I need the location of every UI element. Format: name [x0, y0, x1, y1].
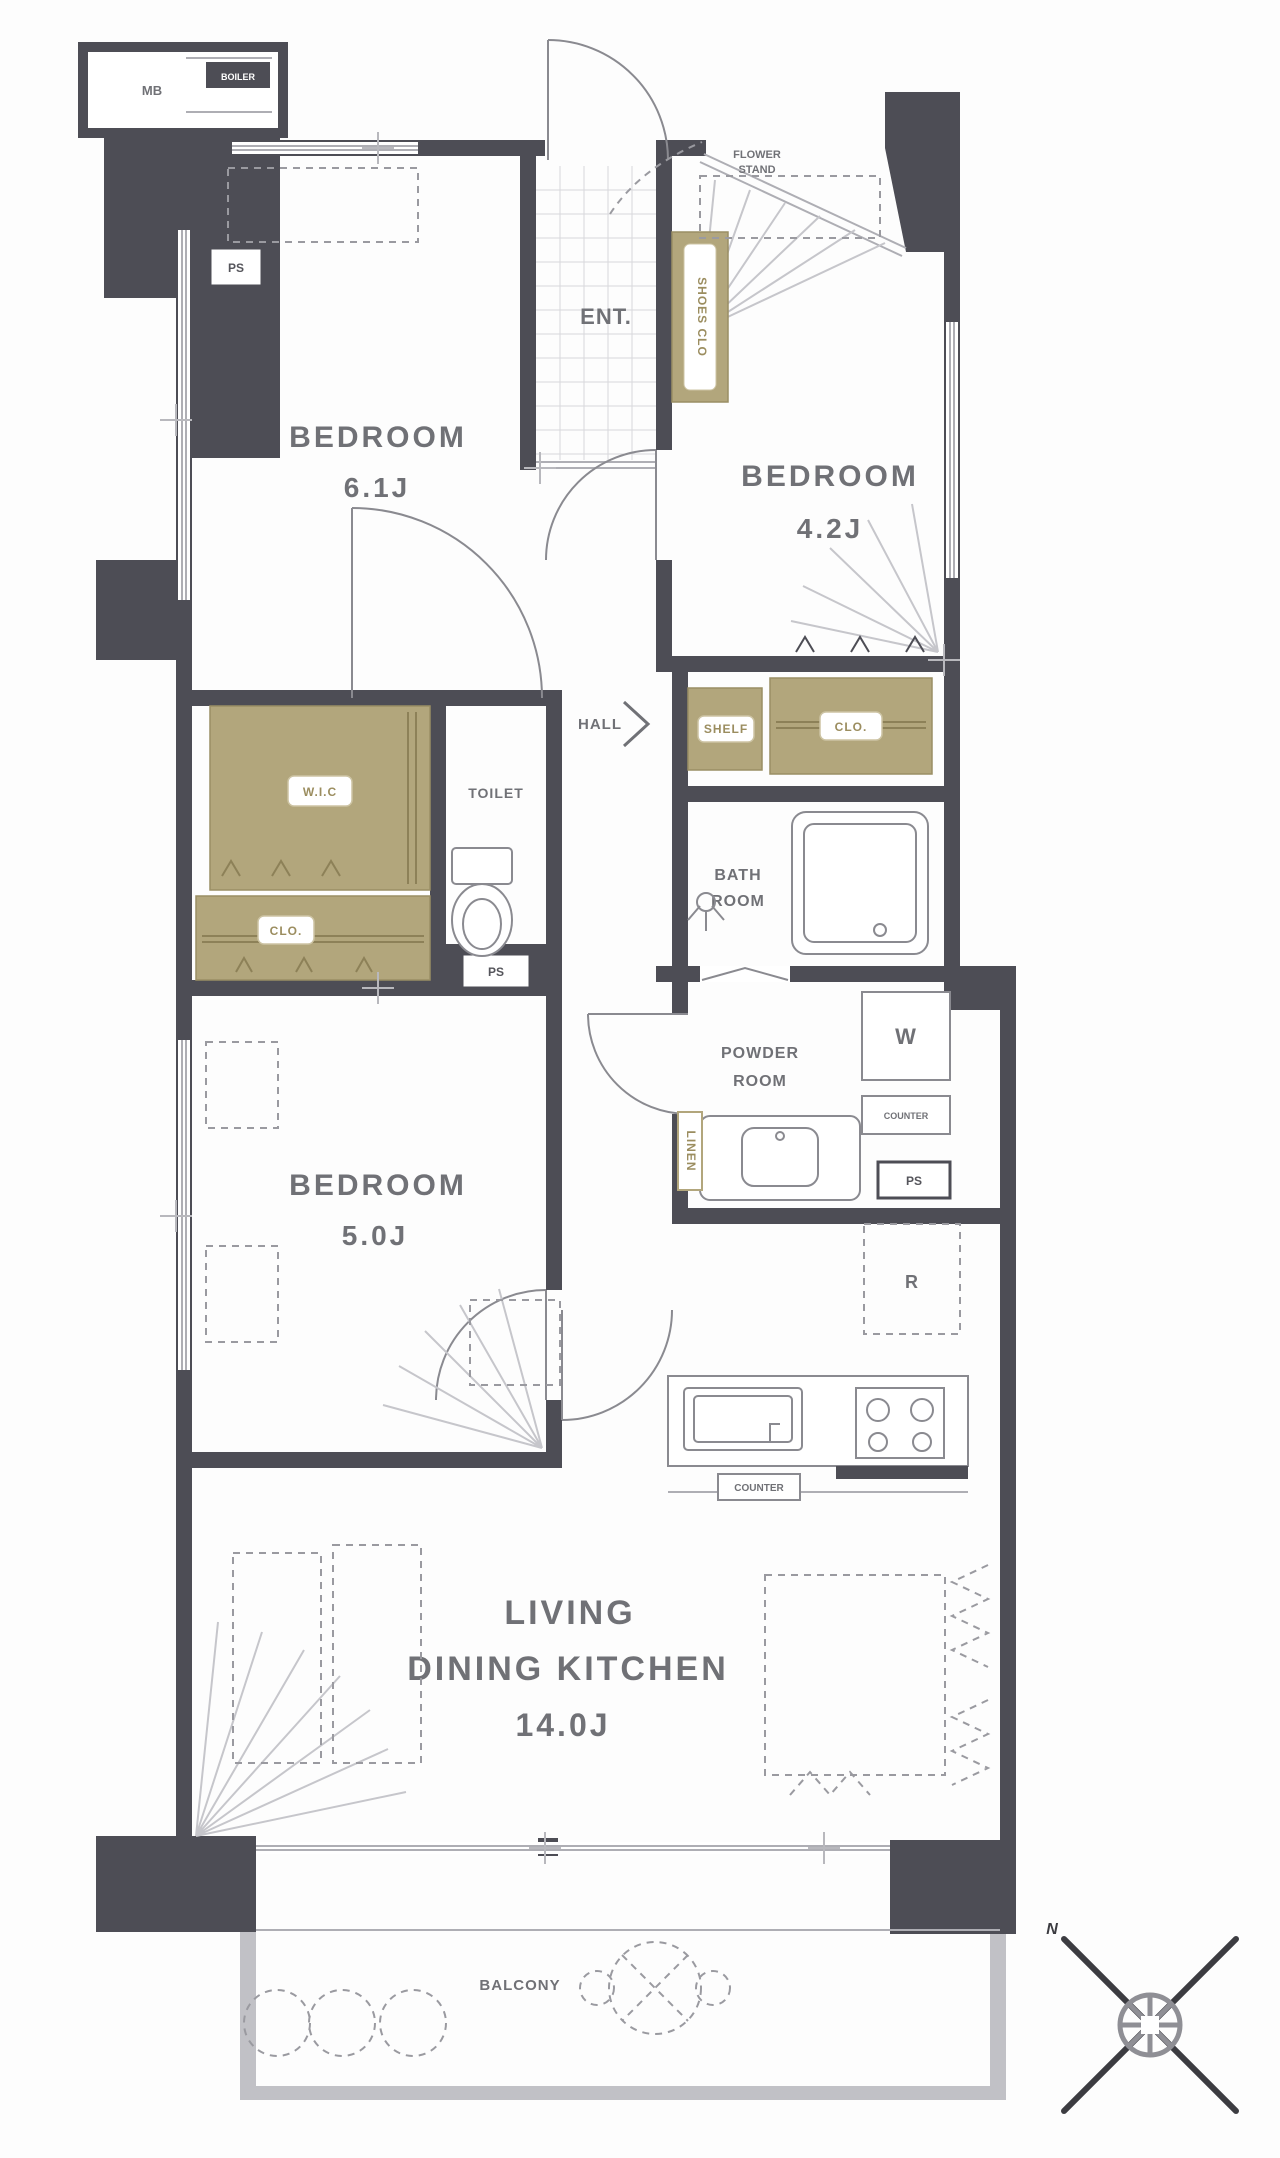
ldk-line2: DINING KITCHEN: [407, 1650, 729, 1688]
balcony: [240, 1930, 1006, 2100]
hall-shelf: SHELF: [688, 688, 762, 770]
shoes-closet-label: SHOES CLO: [695, 277, 709, 357]
bathroom-label-1: BATH: [714, 867, 761, 884]
ps2-label: PS: [488, 965, 504, 979]
toilet-label: TOILET: [468, 785, 524, 801]
powder-room-door: [588, 1014, 688, 1114]
bath-folding-door: [700, 966, 790, 982]
flower-stand-label-1: FLOWER: [733, 149, 781, 161]
refrigerator-space: R: [864, 1224, 960, 1334]
ldk-line1: LIVING: [504, 1594, 635, 1632]
room-bedroom2: BEDROOM 4.2J: [700, 176, 919, 544]
closet-under-wic: CLO.: [196, 896, 430, 980]
bedroom3-door: [436, 1290, 546, 1400]
shelf-label: SHELF: [704, 722, 748, 736]
bedroom3-name: BEDROOM: [289, 1169, 467, 1202]
toilet-fixture: [452, 848, 512, 956]
floor-plan-page: FLOWER STAND SHOES CLO W.I.C CLO. SHELF …: [0, 0, 1280, 2158]
shoes-closet: SHOES CLO: [672, 232, 728, 402]
vanity-sink: LINEN: [678, 1112, 860, 1200]
ldk-door: [562, 1310, 672, 1420]
kitchen-counter-label: COUNTER: [734, 1483, 784, 1494]
wic-label: W.I.C: [303, 785, 337, 799]
meter-box-label: MB: [142, 83, 162, 98]
bedroom1-door: [352, 508, 542, 698]
kitchen-counter: COUNTER: [668, 1376, 968, 1500]
ldk-size: 14.0J: [515, 1707, 610, 1743]
north-label: N: [1046, 1921, 1058, 1938]
bedroom1-left-window: [178, 230, 190, 600]
ps1-label: PS: [228, 261, 244, 275]
bedroom1-size: 6.1J: [344, 472, 411, 503]
ldk-balcony-window: [256, 1842, 890, 1854]
closet2-label: CLO.: [270, 924, 303, 938]
bedroom2-size: 4.2J: [797, 513, 864, 544]
entrance-door: [548, 40, 668, 160]
entrance-label: ENT.: [580, 304, 632, 329]
hall-step-arrow-icon: [624, 702, 648, 746]
balcony-label: BALCONY: [479, 1977, 560, 1994]
planter-icon: [309, 1990, 375, 2056]
powder-label-1: POWDER: [721, 1045, 799, 1062]
ps3-label: PS: [906, 1174, 922, 1188]
room-bedroom3: BEDROOM 5.0J: [206, 1042, 467, 1342]
boiler-label: BOILER: [221, 72, 256, 82]
planter-icon: [380, 1990, 446, 2056]
bedroom3-size: 5.0J: [342, 1220, 409, 1251]
closet1-label: CLO.: [835, 720, 868, 734]
fridge-label: R: [905, 1272, 919, 1292]
garden-table-set: [580, 1942, 730, 2034]
floor-plan-canvas: FLOWER STAND SHOES CLO W.I.C CLO. SHELF …: [0, 0, 1280, 2158]
bedroom3-left-window: [178, 1040, 190, 1370]
bedroom2-right-window: [946, 322, 958, 578]
linen-label: LINEN: [684, 1131, 698, 1172]
bathroom-label-2: ROOM: [711, 893, 765, 910]
bedroom2-door: [546, 450, 656, 560]
north-compass-icon: N: [1046, 1921, 1236, 2111]
flower-stand-label-2: STAND: [738, 164, 775, 176]
bedroom2-name: BEDROOM: [741, 460, 919, 493]
powder-label-2: ROOM: [733, 1073, 787, 1090]
bedroom1-name: BEDROOM: [289, 421, 467, 454]
powder-counter-label: COUNTER: [884, 1111, 929, 1121]
walk-in-closet: W.I.C: [210, 706, 430, 890]
washer-label: W: [895, 1024, 917, 1049]
washer-space: W COUNTER: [862, 992, 950, 1134]
room-ldk: LIVING DINING KITCHEN 14.0J: [407, 1594, 729, 1743]
hall-label: HALL: [578, 716, 622, 733]
